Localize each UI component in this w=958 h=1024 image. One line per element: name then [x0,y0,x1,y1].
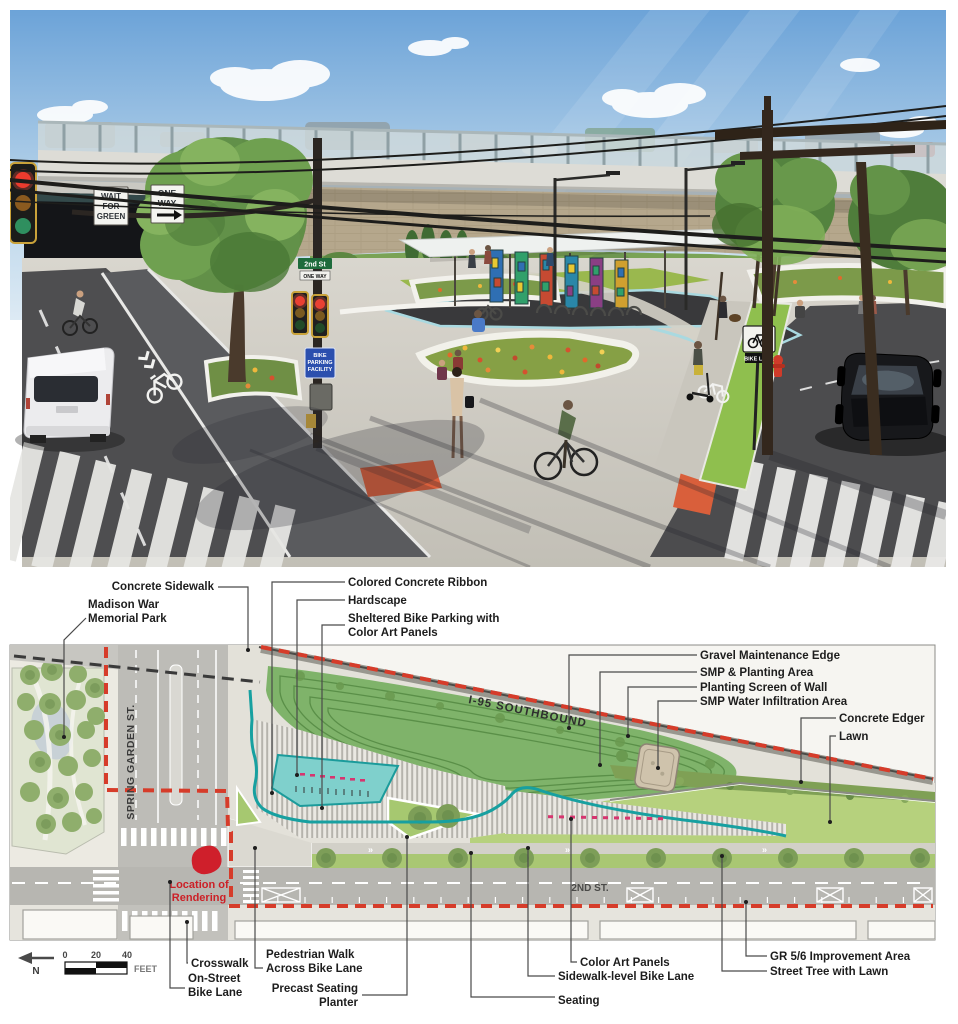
street-name-sign: 2nd St ONE WAY [298,258,332,280]
label-precast-planter: Precast Seating Planter [258,982,358,1011]
label-sidewalk-level: Sidewalk-level Bike Lane [558,970,694,984]
label-lawn: Lawn [839,730,868,744]
svg-text:»: » [368,845,373,855]
svg-text:»: » [762,845,767,855]
label-seating: Seating [558,994,600,1008]
label-gravel-edge: Gravel Maintenance Edge [700,649,840,663]
white-van [15,348,125,452]
bike-lane-strip: » » » [312,843,935,868]
label-planting-screen: Planting Screen of Wall [700,681,827,695]
svg-text:GREEN: GREEN [97,212,126,221]
svg-text:FEET: FEET [134,964,158,974]
second-street [10,867,935,905]
bike-parking-sign: BIKE PARKING FACILITY [305,348,335,378]
label-ped-walk: Pedestrian Walk Across Bike Lane [266,948,363,977]
svg-text:»: » [565,845,570,855]
svg-text:Location of: Location of [169,879,229,891]
label-madison-park: Madison War Memorial Park [88,598,167,627]
madison-park [12,659,105,854]
svg-text:0: 0 [62,950,67,960]
svg-text:Rendering: Rendering [172,892,226,904]
rendering-image: BIKE LANE [10,10,946,567]
label-concrete-sidewalk: Concrete Sidewalk [100,580,214,594]
label-concrete-edger: Concrete Edger [839,712,925,726]
svg-text:2nd St: 2nd St [304,262,326,269]
label-color-art: Color Art Panels [580,956,670,970]
label-crosswalk: Crosswalk [191,957,249,971]
label-street-tree: Street Tree with Lawn [770,965,888,979]
second-st-label: 2ND ST. [571,883,608,894]
svg-text:PARKING: PARKING [308,360,333,366]
svg-text:40: 40 [122,950,132,960]
scale-bar: 0 20 40 FEET [62,950,157,974]
poster-page: BIKE LANE [0,0,958,1024]
south-blocks [10,905,935,940]
svg-text:ONE WAY: ONE WAY [303,274,327,280]
svg-text:20: 20 [91,950,101,960]
label-gr56: GR 5/6 Improvement Area [770,950,910,964]
label-sheltered-bike: Sheltered Bike Parking with Color Art Pa… [348,612,499,641]
label-on-street-bike-lane: On-Street Bike Lane [188,972,242,1001]
north-arrow: N [18,952,54,977]
label-smp-planting: SMP & Planting Area [700,666,813,680]
svg-text:BIKE: BIKE [313,353,326,359]
spring-garden-label: SPRING GARDEN ST. [125,704,137,819]
label-hardscape: Hardscape [348,594,407,608]
svg-text:FACILITY: FACILITY [308,367,333,373]
label-smp-water: SMP Water Infiltration Area [700,695,847,709]
left-traffic-signal [10,163,36,243]
svg-text:N: N [32,966,39,977]
label-colored-ribbon: Colored Concrete Ribbon [348,576,487,590]
